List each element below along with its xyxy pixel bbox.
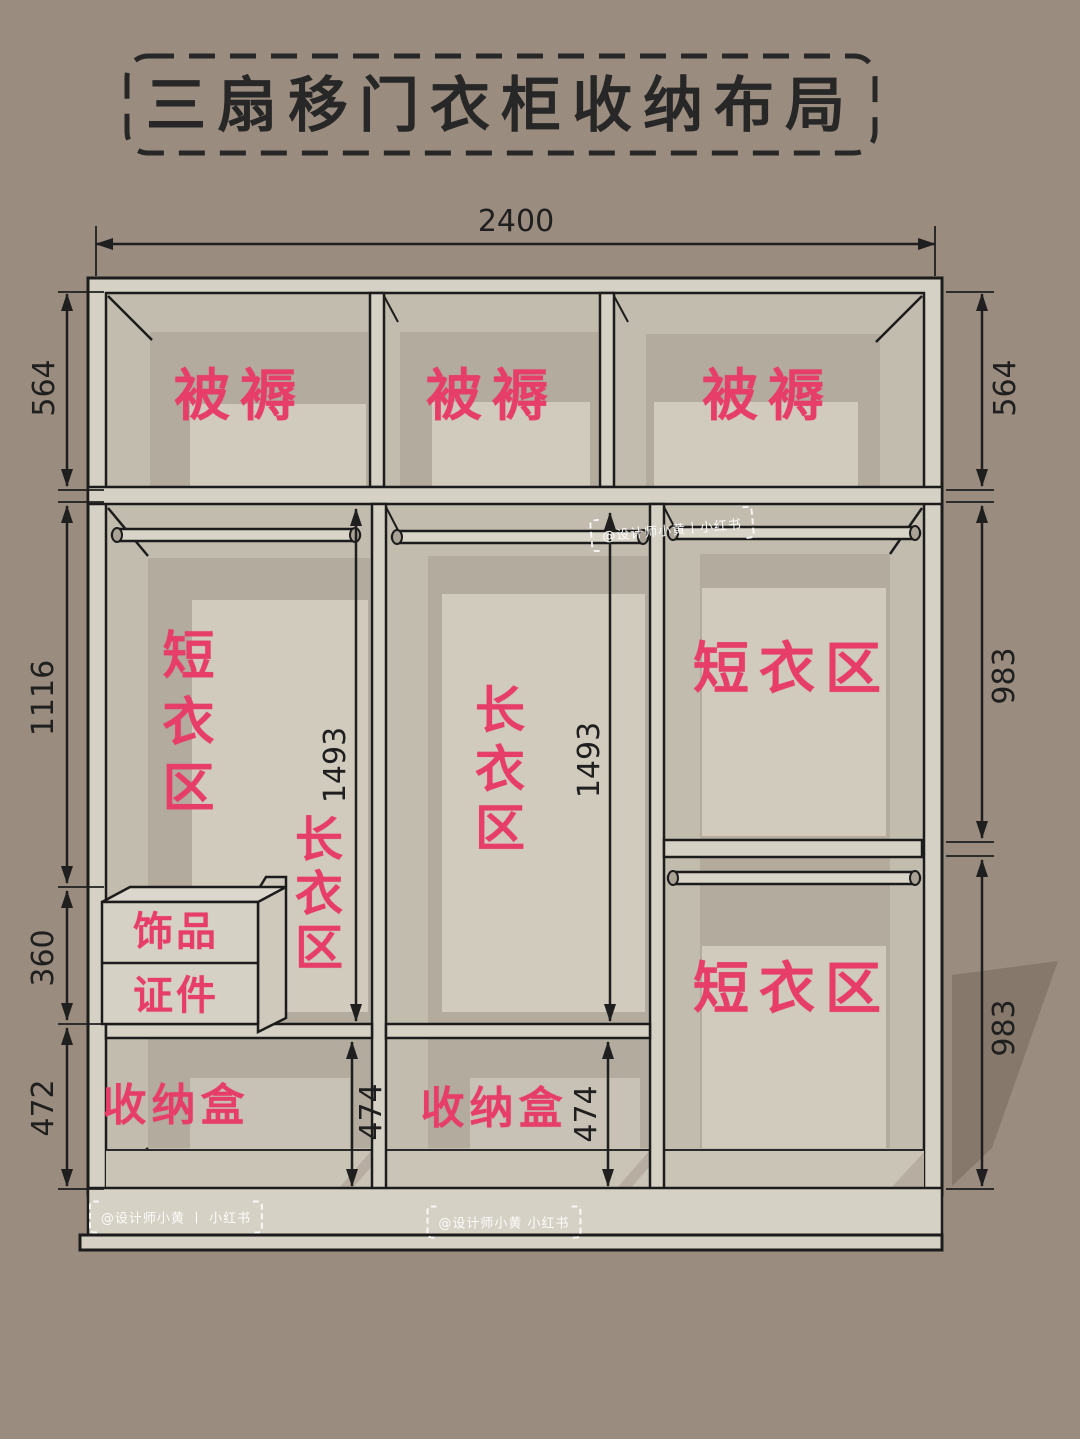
zone-short-clothes-left: 短衣区 xyxy=(157,628,209,826)
zone-storage-box-middle: 收纳盒 xyxy=(421,1087,568,1131)
main-divider-right xyxy=(650,504,664,1189)
dim-right-upper: 983 xyxy=(990,647,1020,704)
left-bottom-shelf xyxy=(106,1024,372,1038)
dim-left-top: 564 xyxy=(30,359,60,416)
watermark-bottom-left: @设计师小黄 丨 小红书 xyxy=(89,1201,263,1234)
zone-short-clothes-right-upper: 短衣区 xyxy=(693,642,891,698)
drawer-label-accessories: 饰品 xyxy=(133,912,219,952)
dim-left-hanging: 1116 xyxy=(29,660,59,736)
hanging-rod-left xyxy=(112,528,360,542)
dim-right-top: 564 xyxy=(991,359,1021,416)
zone-long-clothes-left: 长衣区 xyxy=(290,814,338,976)
dim-storage-left: 474 xyxy=(357,1083,387,1140)
dim-overall-width: 2400 xyxy=(478,207,554,237)
dim-right-lower: 983 xyxy=(990,999,1020,1056)
zone-bedding-3: 被褥 xyxy=(702,369,834,425)
wall-shadow xyxy=(952,961,1058,1186)
zone-storage-box-left: 收纳盒 xyxy=(103,1084,250,1128)
zone-bedding-1: 被褥 xyxy=(174,369,306,425)
top-divider-left xyxy=(370,293,384,487)
drawer-label-documents: 证件 xyxy=(133,976,219,1016)
page-title: 三扇移门衣柜收纳布局 xyxy=(146,76,856,136)
dim-hanging-middle: 1493 xyxy=(575,722,605,798)
middle-bottom-shelf xyxy=(386,1024,650,1038)
zone-long-clothes-middle: 长衣区 xyxy=(471,684,521,861)
top-divider-right xyxy=(600,293,614,487)
dim-hanging-left: 1493 xyxy=(321,727,351,803)
right-middle-shelf xyxy=(664,840,922,857)
dim-storage-middle: 474 xyxy=(572,1085,602,1142)
wardrobe-layout-diagram: 三扇移门衣柜收纳布局 2400 564 1116 360 472 564 983… xyxy=(0,0,1080,1439)
top-shelf-board xyxy=(88,487,942,504)
zone-bedding-2: 被褥 xyxy=(426,369,558,425)
watermark-bottom-center: @设计师小黄 小红书 xyxy=(426,1206,581,1239)
zone-short-clothes-right-lower: 短衣区 xyxy=(693,962,891,1018)
dim-left-drawer: 360 xyxy=(29,929,59,986)
dim-left-bottom: 472 xyxy=(29,1079,59,1136)
hanging-rod-right-lower xyxy=(668,871,920,885)
